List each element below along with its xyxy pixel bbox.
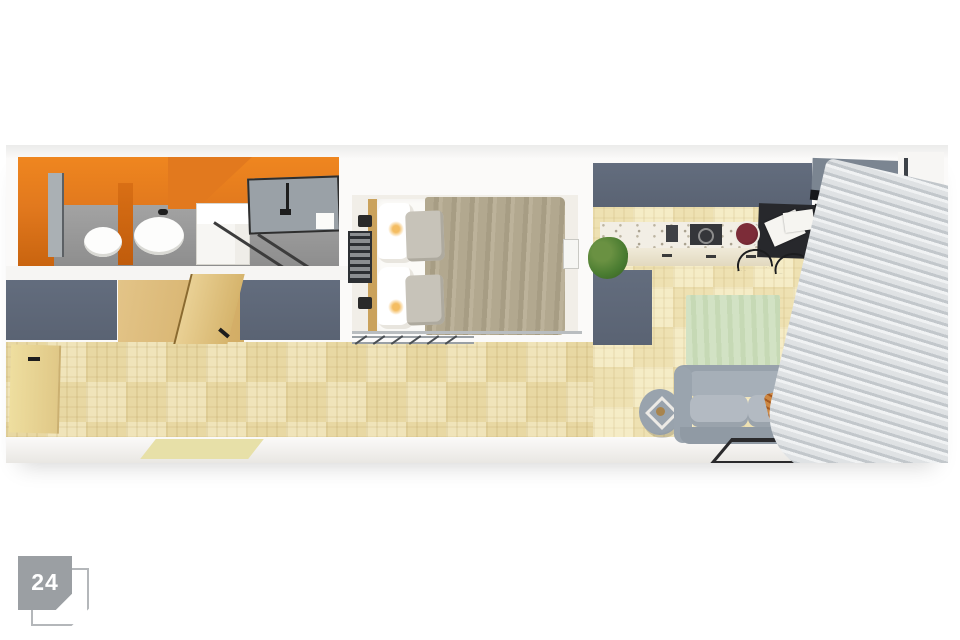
- floorplan-render: [6, 145, 948, 463]
- bathroom-mirror-panel: [48, 173, 64, 257]
- kitchen-sink: [666, 225, 678, 242]
- green-rug: [686, 295, 780, 365]
- wall-sconce-icon2: [358, 297, 372, 309]
- lamp-glow-2: [388, 299, 404, 315]
- shower-rail-icon: [286, 183, 289, 211]
- table-hub: [656, 407, 665, 416]
- living-wall-block: [593, 270, 652, 345]
- kitchen-wall-top: [593, 163, 812, 207]
- bathroom-front-wall: [6, 266, 352, 280]
- shower-head-icon: [280, 209, 291, 215]
- bed-blanket: [425, 197, 565, 335]
- wall-sconce-icon: [358, 215, 372, 227]
- doormat: [140, 439, 264, 459]
- page-number-badge: 24: [18, 556, 102, 628]
- wall-panel: [563, 239, 579, 269]
- vanity-cabinet: [196, 203, 250, 265]
- toilet: [84, 227, 122, 257]
- badge-number-label: 24: [31, 569, 59, 596]
- faucet-icon: [158, 209, 168, 215]
- wardrobe-wall-right: [240, 278, 340, 340]
- bathroom-partition: [118, 183, 133, 265]
- fruit-bowl: [736, 223, 758, 245]
- cabinet-handle-2: [662, 254, 672, 257]
- wardrobe-wall-left: [6, 278, 117, 340]
- sofa-cushion-left: [690, 395, 748, 427]
- cooktop: [690, 224, 722, 245]
- pillow-gray-1: [405, 210, 445, 261]
- pillow-gray-2: [405, 274, 445, 325]
- hallway-parquet-floor: [6, 342, 594, 438]
- bathroom: [18, 157, 339, 266]
- bath-shelf: [316, 213, 334, 229]
- left-door-handle-icon: [28, 357, 40, 361]
- bathroom-wall-wedge: [168, 157, 252, 209]
- bidet: [134, 217, 184, 255]
- cabinet-handle-3: [706, 255, 716, 258]
- lamp-glow-1: [388, 221, 404, 237]
- bedroom-window-grille: [348, 231, 372, 283]
- bedroom-glass-partition: [352, 331, 582, 334]
